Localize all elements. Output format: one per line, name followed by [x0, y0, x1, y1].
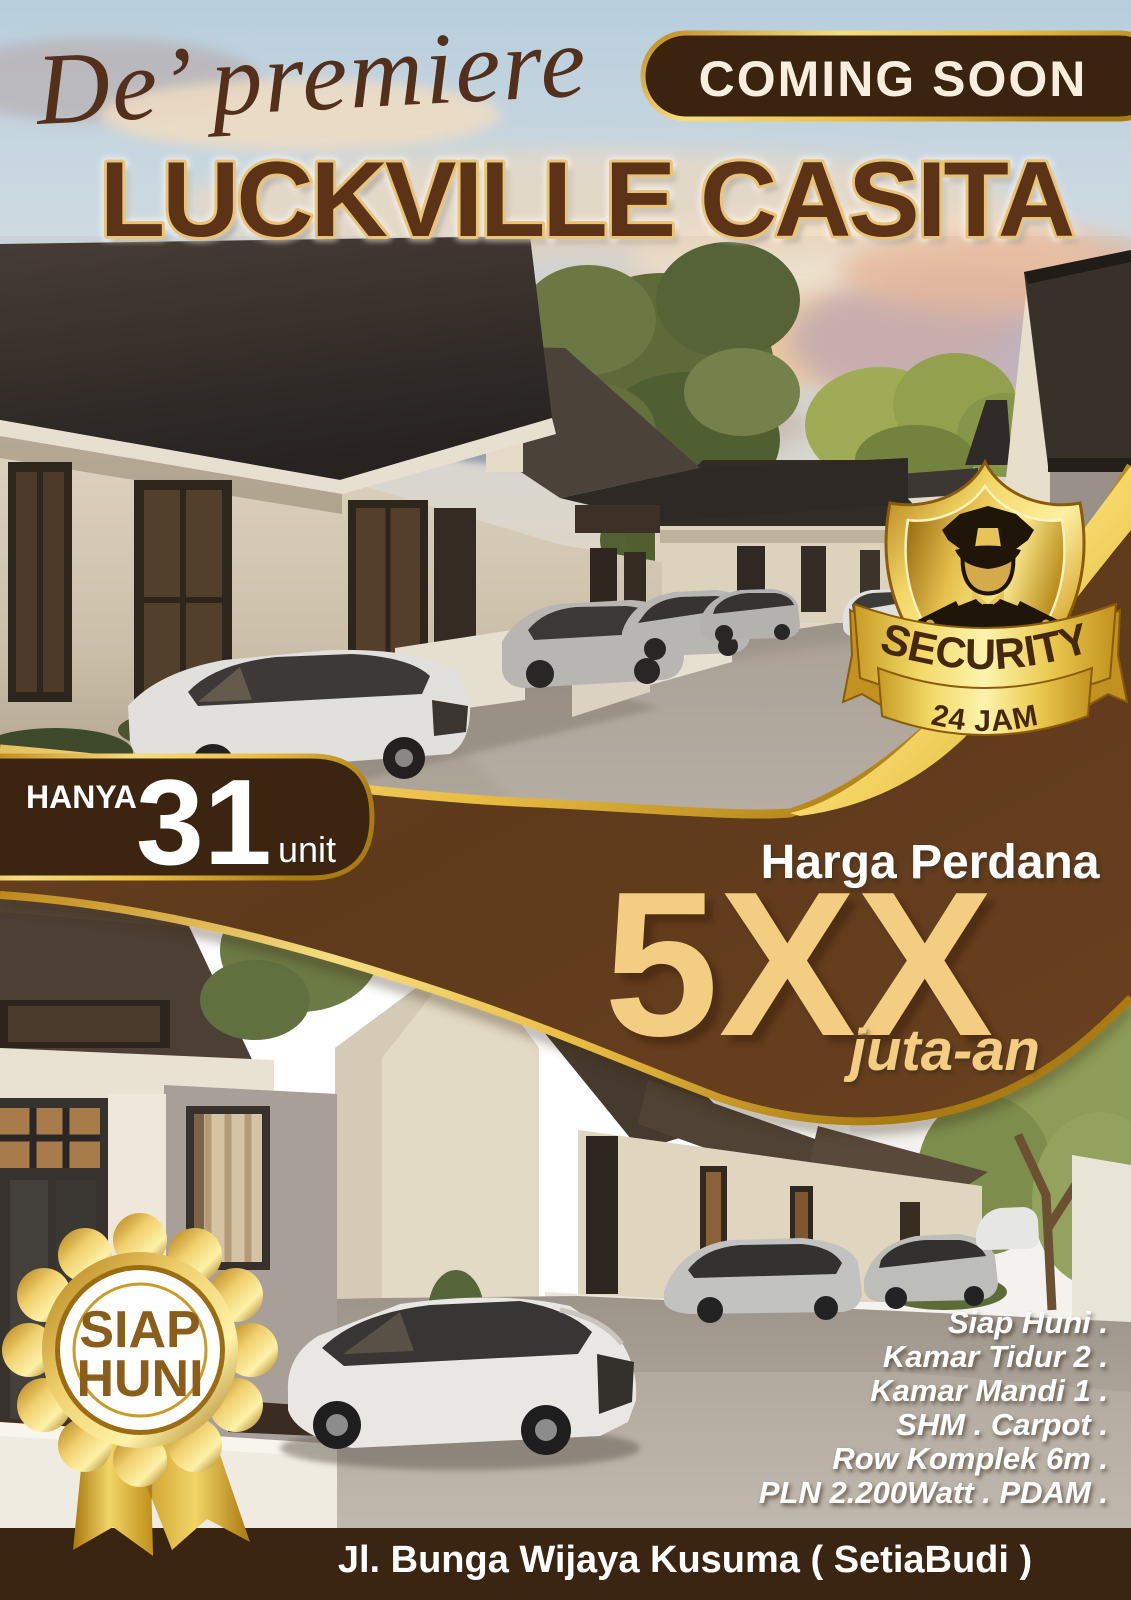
svg-text:SHM . Carpot .: SHM . Carpot . — [896, 1407, 1108, 1442]
svg-text:Kamar Mandi 1 .: Kamar Mandi 1 . — [870, 1373, 1108, 1408]
svg-text:LUCKVILLE CASITA: LUCKVILLE CASITA — [100, 139, 1073, 259]
svg-text:unit: unit — [278, 829, 336, 870]
svg-text:Siap Huni .: Siap Huni . — [948, 1305, 1108, 1340]
svg-text:juta-an: juta-an — [843, 1018, 1040, 1083]
svg-text:HUNI: HUNI — [76, 1350, 203, 1408]
svg-text:Kamar Tidur 2 .: Kamar Tidur 2 . — [883, 1339, 1108, 1374]
svg-text:PLN 2.200Watt . PDAM .: PLN 2.200Watt . PDAM . — [759, 1475, 1108, 1510]
svg-text:Jl. Bunga Wijaya Kusuma ( Seti: Jl. Bunga Wijaya Kusuma ( SetiaBudi ) — [338, 1539, 1032, 1581]
svg-text:HANYA: HANYA — [26, 779, 137, 815]
svg-text:Row Komplek 6m .: Row Komplek 6m . — [832, 1441, 1108, 1476]
svg-text:COMING SOON: COMING SOON — [699, 51, 1088, 107]
svg-text:31: 31 — [136, 754, 272, 890]
